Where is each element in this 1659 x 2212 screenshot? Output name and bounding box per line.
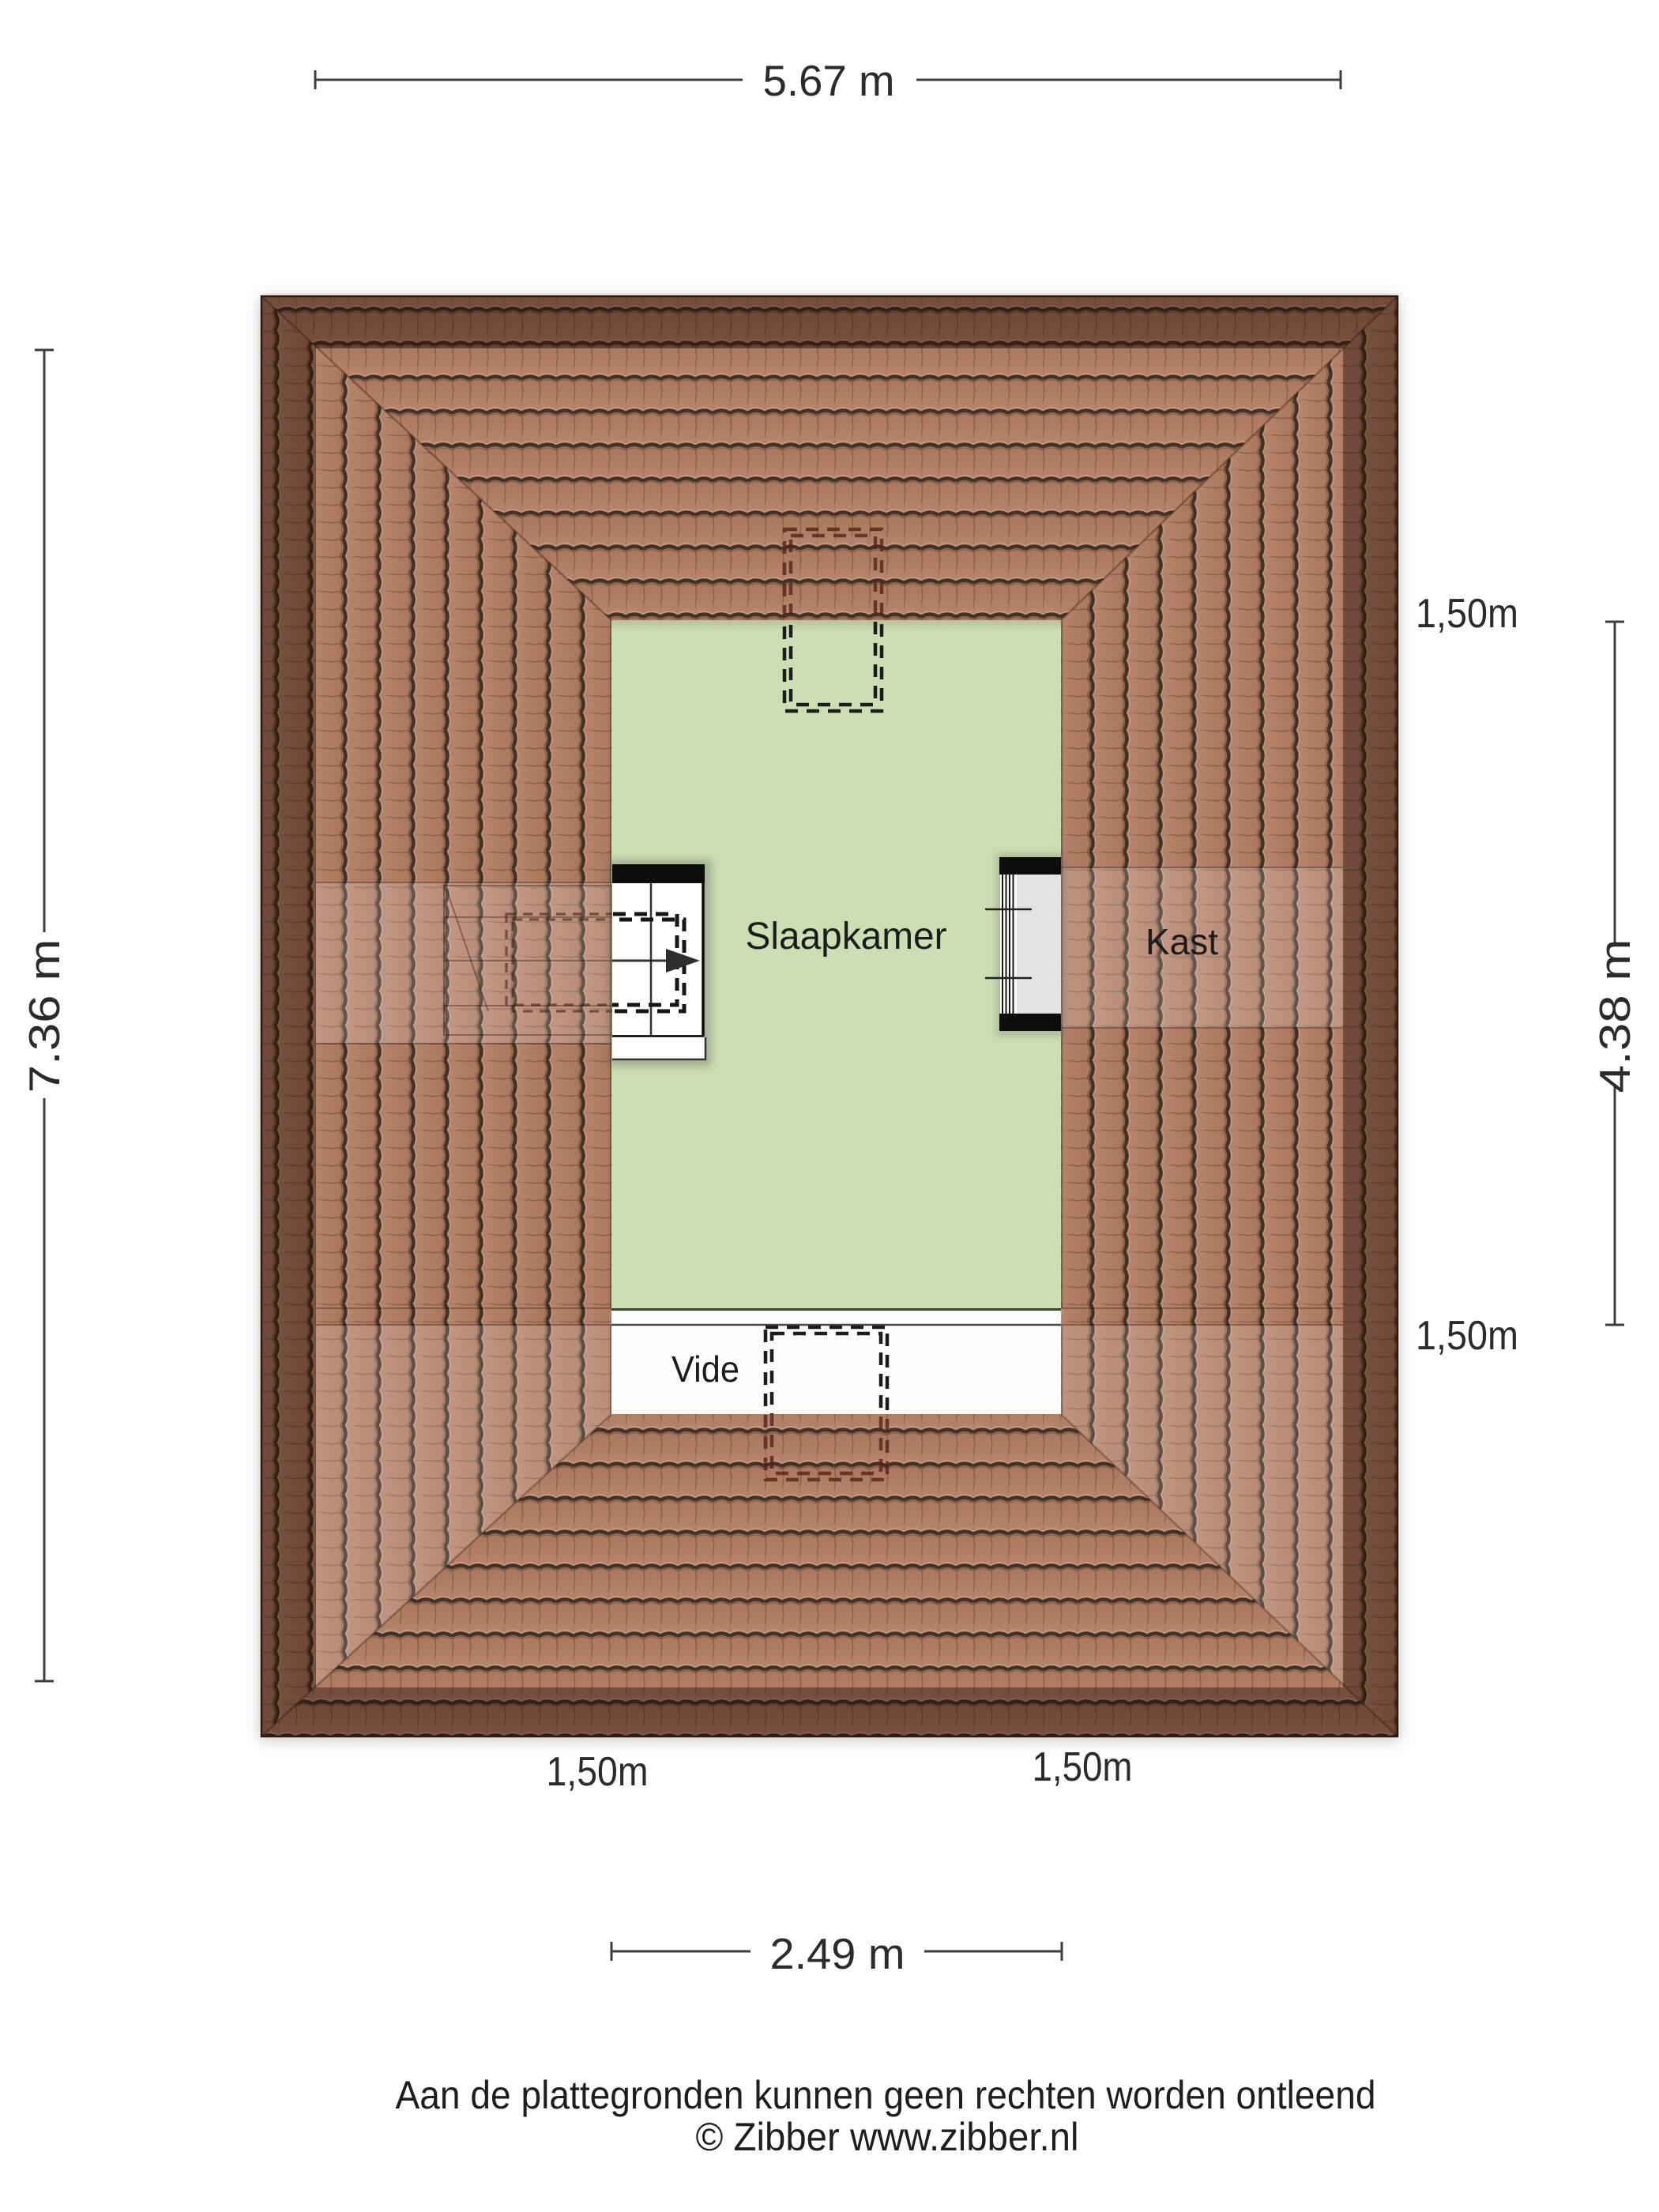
svg-text:4.38 m: 4.38 m xyxy=(1590,939,1639,1093)
svg-text:Slaapkamer: Slaapkamer xyxy=(746,916,947,957)
svg-text:Vide: Vide xyxy=(671,1349,739,1390)
svg-text:Kast: Kast xyxy=(1145,921,1218,962)
svg-text:1,50m: 1,50m xyxy=(1416,1313,1518,1359)
svg-text:1,50m: 1,50m xyxy=(1416,591,1518,637)
svg-text:1,50m: 1,50m xyxy=(547,1749,649,1795)
svg-text:5.67 m: 5.67 m xyxy=(763,56,895,105)
svg-text:Aan de plattegronden kunnen ge: Aan de plattegronden kunnen geen rechten… xyxy=(396,2073,1376,2117)
svg-text:© Zibber www.zibber.nl: © Zibber www.zibber.nl xyxy=(696,2115,1079,2159)
svg-text:1,50m: 1,50m xyxy=(1033,1744,1133,1790)
svg-text:2.49 m: 2.49 m xyxy=(770,1929,905,1978)
svg-text:7.36 m: 7.36 m xyxy=(20,939,69,1093)
